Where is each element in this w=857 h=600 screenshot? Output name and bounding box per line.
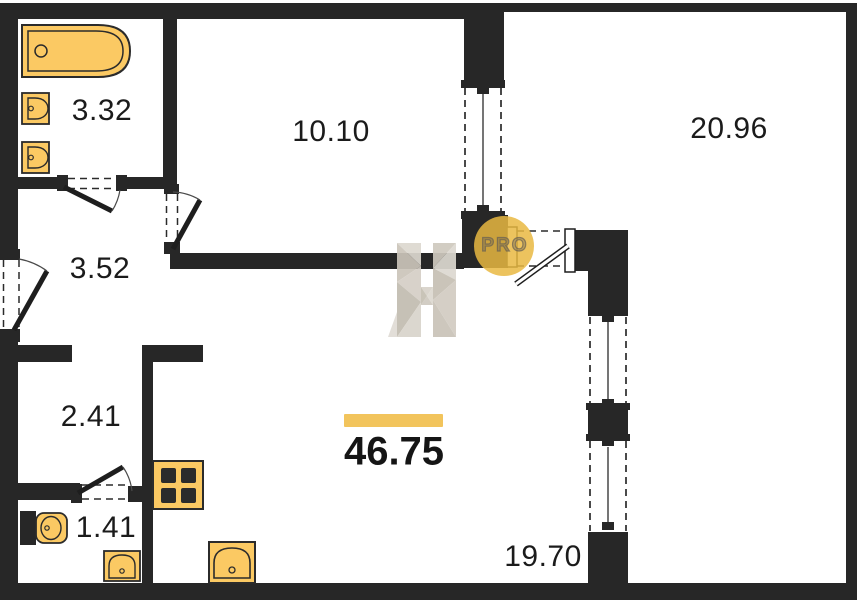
door-post xyxy=(0,329,20,342)
door-entrance xyxy=(4,259,48,330)
sink-icon xyxy=(104,551,140,581)
wall-bottom xyxy=(0,583,857,600)
floorplan: 3.32 10.10 20.96 3.52 2.41 1.41 19.70 46… xyxy=(0,0,857,600)
window-right-upper xyxy=(586,314,630,410)
sink-icon xyxy=(209,542,255,583)
wall-bathroom-divider xyxy=(163,3,177,186)
door-bathroom xyxy=(64,179,120,212)
area-label-kitchen-living: 19.70 xyxy=(504,540,582,574)
area-label-closet: 2.41 xyxy=(61,400,121,434)
wall-right xyxy=(846,3,857,600)
total-area-label: 46.75 xyxy=(344,430,444,475)
area-label-wc: 1.41 xyxy=(76,511,136,545)
wall-top-thick xyxy=(0,3,467,19)
sink-icon xyxy=(22,93,49,124)
door-post xyxy=(0,249,20,260)
area-label-bathroom: 3.32 xyxy=(72,94,132,128)
bathtub-icon xyxy=(22,25,130,77)
door-leaf xyxy=(64,187,112,211)
door-post xyxy=(128,486,142,502)
wall-left-lower xyxy=(0,342,18,583)
sink-icon xyxy=(22,142,49,173)
stove-icon xyxy=(153,461,203,509)
window-top xyxy=(461,80,505,219)
wall-left-upper xyxy=(0,3,18,250)
area-label-room-top: 10.10 xyxy=(292,115,370,149)
wall-kitchen-divider xyxy=(142,345,153,583)
door-wc xyxy=(78,467,132,499)
area-label-hallway: 3.52 xyxy=(70,252,130,286)
total-area-accent-bar xyxy=(344,414,443,427)
door-room-top xyxy=(167,192,201,249)
door-swing xyxy=(19,259,47,271)
window-right-lower xyxy=(586,434,630,531)
area-label-room-right: 20.96 xyxy=(690,112,768,146)
door-leaf xyxy=(78,467,123,493)
toilet-icon xyxy=(20,511,67,545)
floorplan-canvas xyxy=(0,0,857,600)
pro-badge-text: PRO xyxy=(481,235,528,257)
door-swing xyxy=(112,190,120,211)
